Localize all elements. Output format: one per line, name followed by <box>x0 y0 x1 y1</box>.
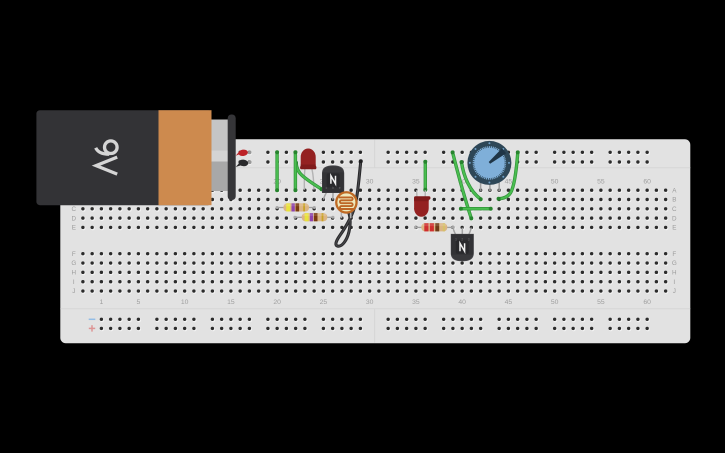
svg-text:C: C <box>672 206 677 213</box>
svg-text:E: E <box>672 225 676 232</box>
svg-text:1: 1 <box>455 237 457 241</box>
svg-text:I: I <box>73 279 75 286</box>
svg-text:e: e <box>339 186 341 190</box>
svg-text:3: 3 <box>468 237 470 241</box>
svg-text:I: I <box>673 279 675 286</box>
svg-text:H: H <box>672 270 677 277</box>
svg-text:35: 35 <box>412 299 420 306</box>
svg-text:60: 60 <box>643 299 651 306</box>
svg-text:45: 45 <box>505 299 513 306</box>
svg-text:1: 1 <box>100 299 104 306</box>
svg-text:E: E <box>72 225 76 232</box>
svg-text:H: H <box>72 270 77 277</box>
svg-text:55: 55 <box>597 178 605 185</box>
svg-text:35: 35 <box>412 178 420 185</box>
svg-text:B: B <box>672 197 676 204</box>
svg-text:30: 30 <box>366 299 374 306</box>
svg-text:G: G <box>672 260 677 267</box>
svg-text:40: 40 <box>458 299 466 306</box>
svg-text:20: 20 <box>273 299 281 306</box>
svg-text:G: G <box>71 260 76 267</box>
svg-text:60: 60 <box>643 178 651 185</box>
svg-text:30: 30 <box>366 178 374 185</box>
svg-text:55: 55 <box>597 299 605 306</box>
svg-text:50: 50 <box>551 178 559 185</box>
svg-text:45: 45 <box>505 178 513 185</box>
svg-text:D: D <box>672 215 677 222</box>
svg-text:J: J <box>673 288 676 295</box>
svg-text:J: J <box>72 288 75 295</box>
svg-text:b: b <box>332 186 334 190</box>
svg-text:15: 15 <box>227 299 235 306</box>
svg-text:25: 25 <box>320 299 328 306</box>
svg-text:F: F <box>72 251 76 258</box>
svg-text:D: D <box>72 215 77 222</box>
svg-text:C: C <box>72 206 77 213</box>
svg-text:5: 5 <box>137 299 141 306</box>
svg-text:10: 10 <box>181 299 189 306</box>
svg-text:2: 2 <box>461 237 463 241</box>
svg-text:F: F <box>672 251 676 258</box>
svg-text:50: 50 <box>551 299 559 306</box>
